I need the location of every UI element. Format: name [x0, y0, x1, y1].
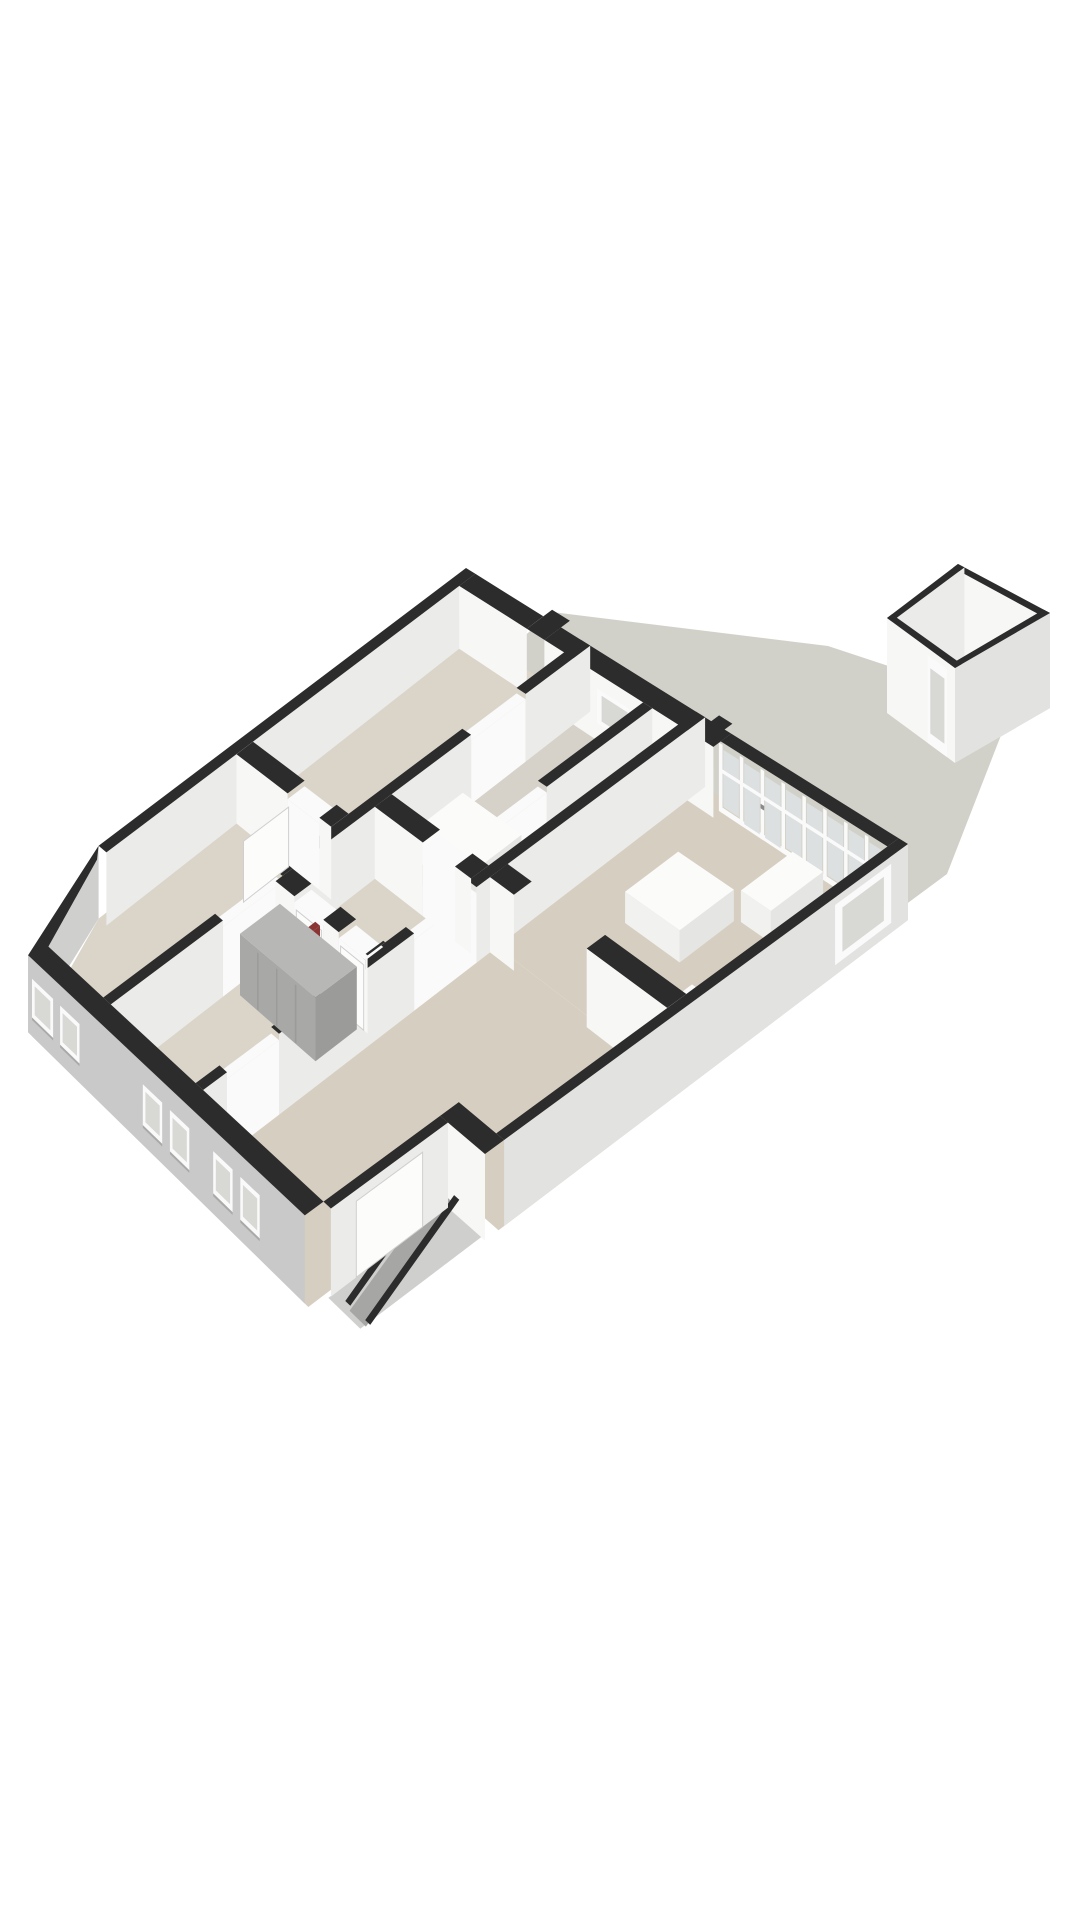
kitchen-glazed-wall-glass-1: [744, 763, 760, 834]
kitchen-glazed-wall-glass-5: [828, 816, 844, 886]
closet-north-wall-3-face: [366, 954, 368, 1034]
scene-svg: [0, 0, 1080, 1920]
kitchen-glazed-wall-glass-4: [807, 803, 823, 872]
page-root: [0, 0, 1080, 1920]
kitchen-glazed-wall-glass-0: [723, 750, 739, 817]
kitchen-glazed-wall-glass-3: [786, 790, 802, 859]
kitchen-glazed-wall-mullion-5: [823, 808, 827, 882]
bath-south-wall-2-face: [455, 867, 471, 954]
wardrobe-seam-3: [295, 984, 297, 1043]
kitchen-glazed-wall-mullion-4: [802, 795, 806, 868]
kitchen-glazed-wall-mullion-0: [719, 743, 723, 814]
kitchen-glazed-wall-mullion-3: [782, 782, 786, 855]
wardrobe-seam-1: [257, 952, 259, 1010]
wardrobe-seam-2: [276, 968, 278, 1027]
bedroom-split-wall-2-face: [319, 818, 331, 900]
shed-door-glass: [930, 668, 944, 743]
kitchen-glazed-wall-mullion-1: [740, 756, 744, 827]
kitchen-glazed-wall-glass-2: [765, 776, 781, 848]
